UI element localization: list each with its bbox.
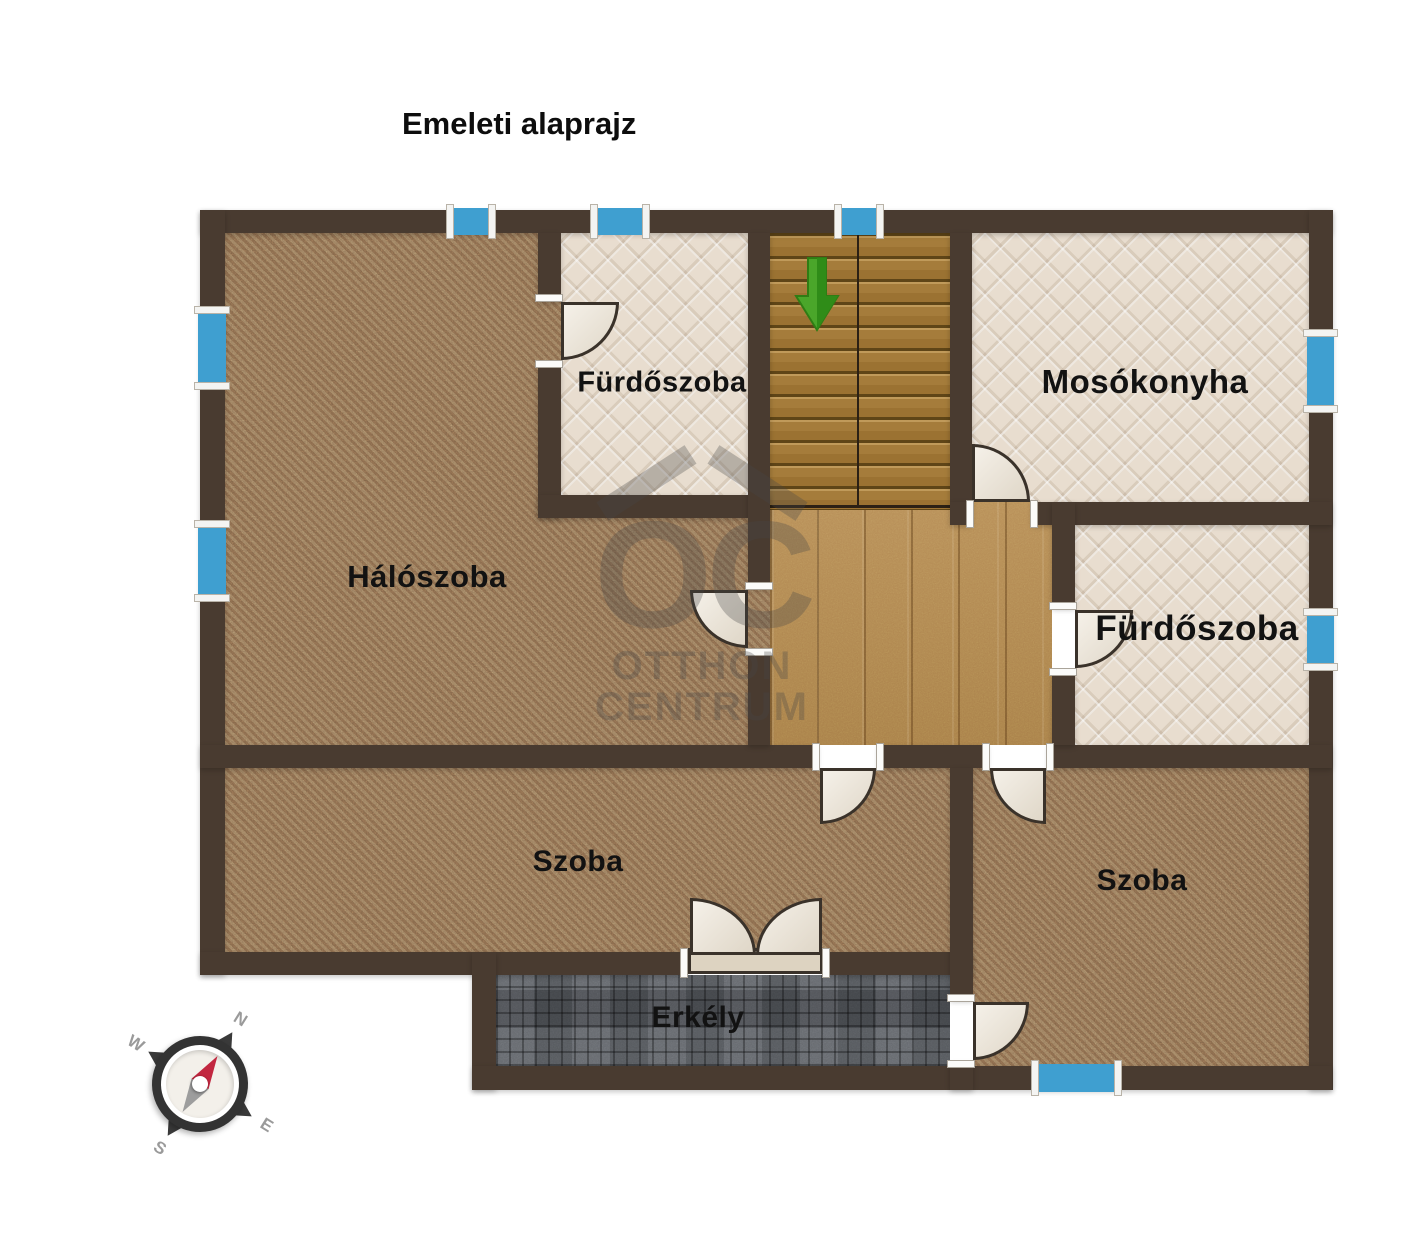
wall-segment: [538, 233, 561, 302]
door-jamb: [982, 743, 990, 771]
door-jamb: [822, 948, 830, 978]
door-jamb: [947, 1060, 975, 1068]
wall-segment: [1052, 672, 1075, 745]
hall-floor: [770, 502, 1052, 745]
room-label-furdoszoba-top: Fürdőszoba: [577, 367, 746, 400]
door-jamb: [812, 743, 820, 771]
wall-segment: [748, 650, 770, 745]
window: [198, 310, 226, 386]
door-jamb: [745, 648, 773, 656]
window: [1307, 612, 1334, 667]
floor-plan: Emeleti alaprajz: [0, 0, 1420, 1240]
room-furdoszoba-top-floor: [561, 233, 748, 495]
wall-segment: [200, 952, 688, 975]
room-label-haloszoba: Hálószoba: [347, 559, 507, 595]
window: [594, 208, 646, 235]
wall-segment: [950, 233, 972, 502]
door-jamb: [1049, 602, 1077, 610]
door-jamb: [1049, 668, 1077, 676]
wall-segment: [748, 233, 770, 588]
window: [1307, 333, 1334, 409]
room-label-erkely: Erkély: [651, 1001, 744, 1035]
door-jamb: [1046, 743, 1054, 771]
room-label-furdoszoba-right: Fürdőszoba: [1095, 609, 1298, 649]
stairs-divider: [857, 233, 859, 507]
wall-segment: [200, 210, 1332, 233]
compass-label-west: W: [123, 1031, 147, 1056]
room-label-mosokonyha: Mosókonyha: [1042, 363, 1249, 401]
wall-segment: [472, 1066, 1332, 1090]
compass-rose: N W E S: [138, 1022, 262, 1146]
wall-segment: [1032, 502, 1332, 525]
window: [198, 524, 226, 598]
stairs-bottom-edge: [770, 505, 950, 508]
window: [450, 208, 492, 235]
wall-segment: [878, 745, 988, 768]
wall-segment: [200, 745, 818, 768]
door-jamb: [535, 360, 563, 368]
door-jamb: [876, 743, 884, 771]
door-jamb: [535, 294, 563, 302]
compass-label-east: E: [256, 1114, 276, 1137]
window: [838, 208, 880, 235]
door-jamb: [966, 500, 974, 528]
wall-segment: [1052, 502, 1075, 608]
wall-segment: [950, 768, 973, 1000]
compass-label-south: S: [150, 1137, 170, 1160]
door-jamb: [745, 582, 773, 590]
plan-title: Emeleti alaprajz: [402, 106, 636, 142]
compass-label-north: N: [230, 1008, 251, 1031]
wall-segment: [1048, 745, 1332, 768]
stairs-down-arrow-icon: [794, 256, 840, 332]
room-label-szoba-left: Szoba: [533, 845, 624, 879]
door-jamb: [680, 948, 688, 978]
room-label-szoba-right: Szoba: [1097, 864, 1188, 898]
door-jamb: [1030, 500, 1038, 528]
wall-segment: [538, 495, 770, 518]
door-jamb: [947, 994, 975, 1002]
window: [1035, 1064, 1118, 1092]
